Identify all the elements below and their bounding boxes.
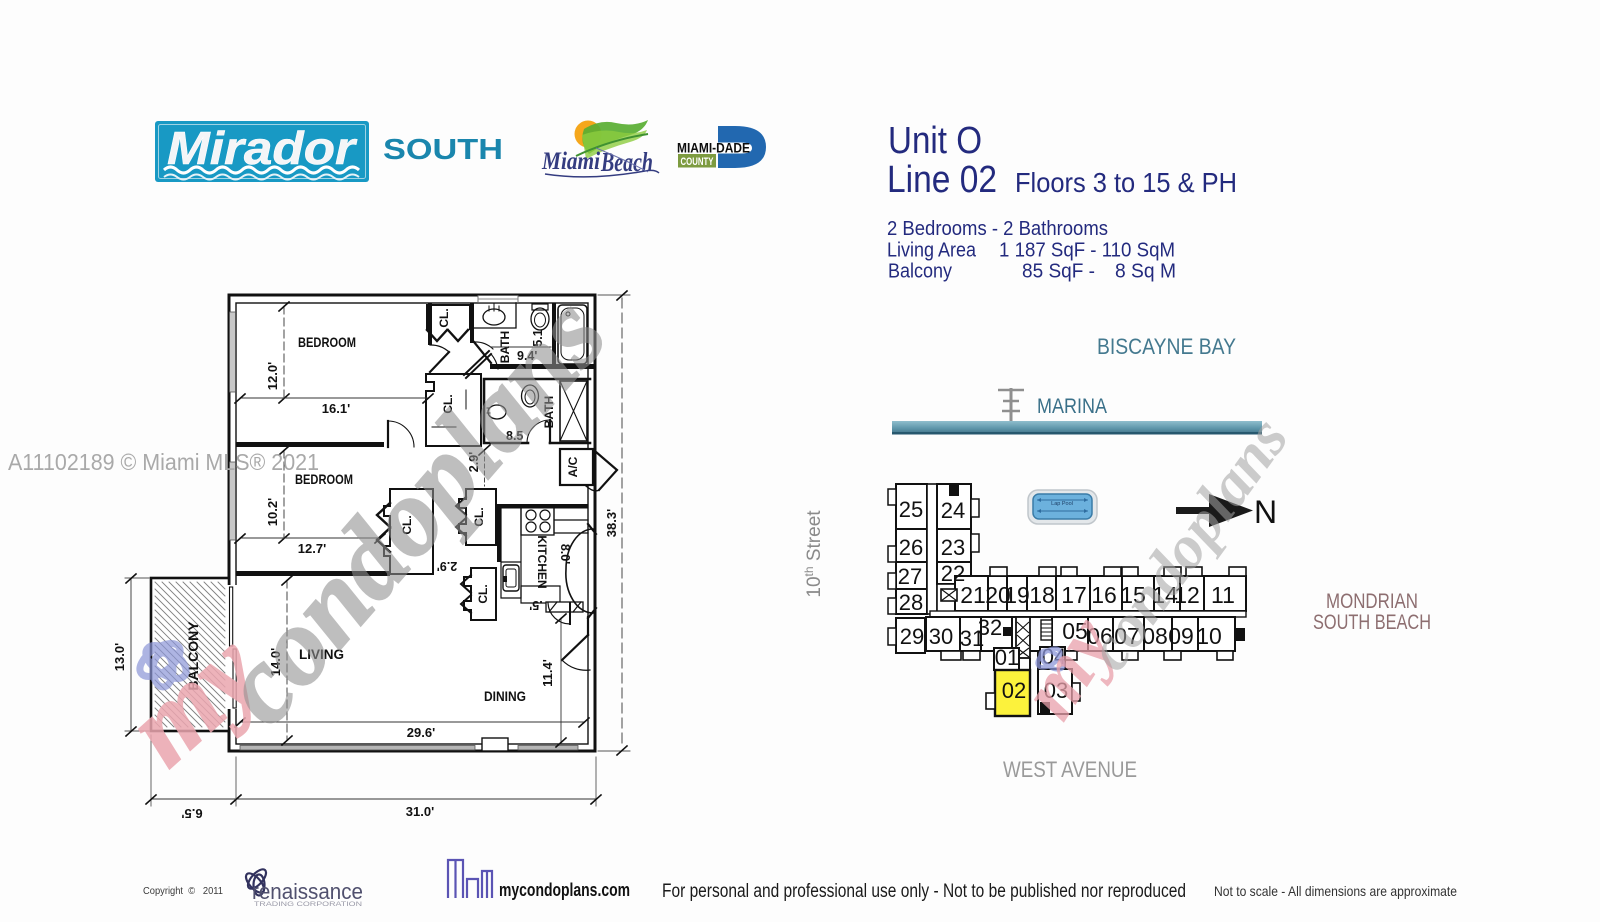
svg-text:11.4': 11.4' (540, 659, 555, 687)
svg-text:Miami: Miami (541, 148, 600, 175)
svg-text:Beach: Beach (600, 147, 653, 177)
svg-text:COUNTY: COUNTY (681, 156, 714, 168)
svg-text:19: 19 (1004, 582, 1030, 608)
svg-text:A11102189 © Miami MLS® 2021: A11102189 © Miami MLS® 2021 (8, 449, 319, 475)
svg-text:09: 09 (1168, 623, 1194, 649)
svg-text:Unit O: Unit O (888, 120, 982, 162)
svg-text:SOUTH: SOUTH (383, 134, 503, 166)
svg-text:A/C: A/C (566, 456, 580, 477)
svg-text:BISCAYNE BAY: BISCAYNE BAY (1097, 334, 1236, 359)
svg-text:CL.: CL. (437, 308, 451, 327)
svg-text:8 Sq M: 8 Sq M (1115, 260, 1176, 283)
svg-text:KITCHEN: KITCHEN (535, 535, 549, 588)
svg-text:DINING: DINING (484, 688, 526, 704)
svg-text:MONDRIAN: MONDRIAN (1326, 590, 1418, 613)
svg-text:12.0': 12.0' (265, 362, 280, 390)
svg-text:WEST AVENUE: WEST AVENUE (1003, 757, 1137, 782)
svg-text:21: 21 (960, 582, 986, 608)
svg-text:TRADING CORPORATION: TRADING CORPORATION (254, 901, 362, 908)
svg-text:MARINA: MARINA (1037, 395, 1107, 418)
svg-text:SOUTH BEACH: SOUTH BEACH (1313, 611, 1431, 634)
svg-text:24: 24 (941, 498, 965, 523)
svg-text:10: 10 (1196, 623, 1222, 649)
svg-text:10.2': 10.2' (265, 498, 280, 526)
svg-text:Floors 3 to 15 & PH: Floors 3 to 15 & PH (1015, 167, 1237, 198)
svg-text:23: 23 (941, 535, 965, 560)
svg-text:26: 26 (899, 535, 923, 560)
svg-text:28: 28 (899, 590, 923, 615)
svg-text:29: 29 (900, 624, 924, 649)
svg-text:Lap Pool: Lap Pool (1051, 501, 1073, 507)
svg-text:10th Street: 10th Street (802, 510, 825, 598)
svg-text:Not to scale - All dimensions: Not to scale - All dimensions are approx… (1214, 883, 1457, 899)
svg-text:11: 11 (1211, 582, 1235, 608)
svg-text:6.5': 6.5' (181, 806, 202, 821)
svg-text:16.1': 16.1' (322, 401, 350, 416)
svg-text:17: 17 (1061, 582, 1087, 608)
svg-text:31.0': 31.0' (406, 804, 434, 819)
svg-text:mycondoplans.com: mycondoplans.com (499, 880, 630, 900)
svg-text:85 SqF -: 85 SqF - (1022, 260, 1095, 283)
svg-text:38.3': 38.3' (604, 509, 619, 537)
svg-text:25: 25 (899, 497, 923, 522)
svg-text:29.6': 29.6' (407, 725, 435, 740)
svg-text:For personal and professional: For personal and professional use only -… (662, 881, 1186, 902)
svg-text:2 Bedrooms - 2 Bathrooms: 2 Bedrooms - 2 Bathrooms (887, 217, 1108, 240)
svg-text:32: 32 (978, 615, 1002, 640)
svg-text:Copyright © 2011: Copyright © 2011 (143, 886, 223, 897)
svg-text:30: 30 (929, 624, 953, 649)
svg-text:CL.: CL. (476, 584, 490, 603)
svg-text:Living Area: Living Area (887, 239, 977, 262)
svg-text:Balcony: Balcony (888, 260, 953, 283)
svg-text:18: 18 (1029, 582, 1055, 608)
svg-text:1 187 SqF - 110 SqM: 1 187 SqF - 110 SqM (999, 239, 1175, 262)
svg-text:BEDROOM: BEDROOM (298, 334, 356, 350)
svg-text:13.0': 13.0' (112, 643, 127, 671)
svg-text:MIAMI-DADE: MIAMI-DADE (677, 141, 750, 156)
svg-text:.5': .5' (529, 598, 542, 612)
svg-text:Line 02: Line 02 (887, 159, 997, 201)
svg-text:27: 27 (898, 564, 922, 589)
